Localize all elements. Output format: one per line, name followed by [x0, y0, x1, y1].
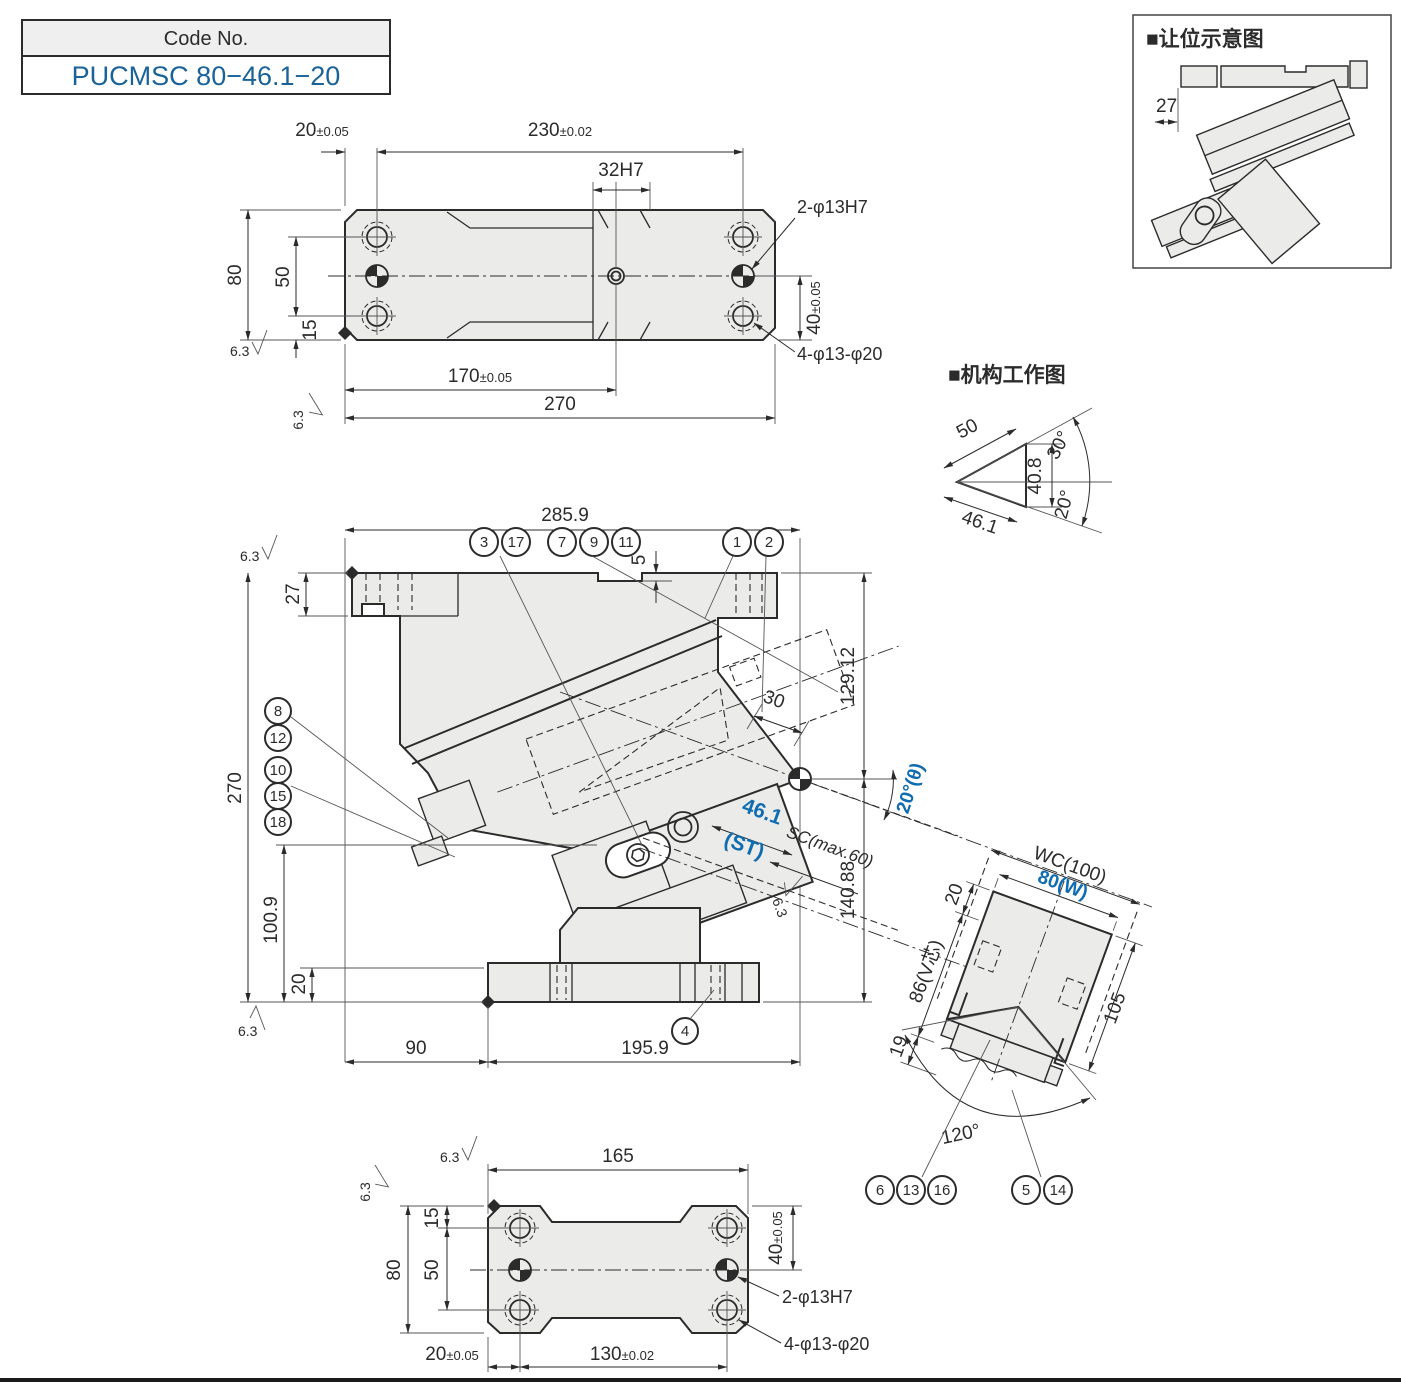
surface-finish-bottom-view: 6.3 6.3 — [357, 1136, 477, 1202]
dim-40-005: 40±0.05 — [804, 281, 825, 335]
balloon-16: 16 — [928, 1176, 956, 1204]
dim-170-005: 170±0.05 — [448, 366, 512, 387]
dim-40-bottom: 40±0.05 — [766, 1211, 787, 1265]
dim-270: 270 — [544, 394, 576, 415]
dim-20-side: 20 — [941, 881, 968, 908]
svg-text:12: 12 — [270, 730, 287, 747]
svg-text:13: 13 — [903, 1182, 920, 1199]
dim-20-005: 20±0.05 — [295, 120, 349, 141]
balloon-8: 8 — [265, 698, 291, 724]
callout-4-phi13-phi20: 4-φ13-φ20 — [797, 344, 882, 364]
dim-27: 27 — [283, 583, 304, 604]
balloon-4: 4 — [672, 1018, 698, 1044]
svg-text:3: 3 — [480, 534, 488, 551]
svg-text:11: 11 — [618, 534, 634, 551]
mech-dim-50: 50 — [953, 415, 982, 443]
balloon-2: 2 — [755, 528, 783, 556]
mechanism-inset: ■机构工作图 40.8 50 46.1 30° 20° — [944, 363, 1112, 539]
balloon-17: 17 — [502, 528, 530, 556]
dim-90: 90 — [405, 1038, 426, 1059]
dim-140-88: 140.88 — [838, 861, 859, 919]
svg-text:8: 8 — [274, 703, 282, 720]
svg-text:6.3: 6.3 — [290, 410, 306, 430]
balloon-12: 12 — [265, 725, 291, 751]
dim-50-bottom: 50 — [422, 1259, 443, 1280]
svg-text:6: 6 — [876, 1182, 884, 1199]
dim-285-9: 285.9 — [541, 505, 589, 526]
dim-230-002: 230±0.02 — [528, 120, 592, 141]
svg-text:6.3: 6.3 — [238, 1023, 258, 1039]
mechanism-title: ■机构工作图 — [948, 363, 1066, 387]
balloon-13: 13 — [897, 1176, 925, 1204]
angle-120: 120° — [939, 1120, 982, 1149]
mech-dim-40-8: 40.8 — [1025, 458, 1046, 495]
balloon-5: 5 — [1012, 1176, 1040, 1204]
balloon-10: 10 — [265, 757, 291, 783]
svg-text:6.3: 6.3 — [357, 1182, 373, 1202]
svg-text:6.3: 6.3 — [440, 1149, 460, 1165]
dim-130-bottom: 130±0.02 — [590, 1344, 654, 1365]
dim-20-bottom: 20±0.05 — [425, 1344, 479, 1365]
base-plate — [488, 963, 759, 1002]
callout-2-phi13h7: 2-φ13H7 — [797, 197, 868, 217]
balloon-9: 9 — [580, 528, 608, 556]
dim-80: 80 — [225, 264, 246, 285]
dim-32h7: 32H7 — [598, 160, 643, 181]
surface-finish-top-view: 6.3 6.3 — [230, 330, 328, 430]
svg-text:2: 2 — [765, 534, 773, 551]
balloon-11: 11 — [612, 528, 640, 556]
code-number-box: Code No. PUCMSC 80−46.1−20 — [22, 20, 390, 94]
balloon-3: 3 — [470, 528, 498, 556]
balloon-15: 15 — [265, 783, 291, 809]
balloon-1: 1 — [723, 528, 751, 556]
svg-text:5: 5 — [1022, 1182, 1030, 1199]
wedge-triangle — [957, 444, 1026, 507]
dim-100-9: 100.9 — [261, 896, 282, 944]
mech-dim-46-1: 46.1 — [959, 507, 1001, 539]
clearance-dim-27: 27 — [1156, 96, 1177, 117]
balloon-7: 7 — [548, 528, 576, 556]
mech-angle-30: 30° — [1043, 428, 1075, 463]
dim-50: 50 — [273, 266, 294, 287]
clearance-inset: ■让位示意图 27 — [1133, 15, 1391, 268]
pedestal — [560, 908, 700, 963]
code-label: Code No. — [164, 28, 249, 50]
dim-5: 5 — [629, 555, 650, 566]
svg-text:10: 10 — [270, 762, 287, 779]
svg-text:18: 18 — [270, 814, 287, 831]
callout-4-phi13-phi20-bottom: 4-φ13-φ20 — [784, 1334, 869, 1354]
angle-20-theta: 20°(θ) — [893, 760, 929, 816]
dim-15-bottom: 15 — [422, 1207, 443, 1228]
dim-80-bottom: 80 — [384, 1259, 405, 1280]
mech-angle-20: 20° — [1051, 488, 1079, 521]
dim-30: 30 — [760, 686, 787, 713]
svg-text:4: 4 — [681, 1023, 689, 1040]
svg-text:14: 14 — [1050, 1182, 1067, 1199]
dim-270-front: 270 — [225, 772, 246, 804]
dim-86-v: 86(V芯) — [904, 937, 947, 1006]
dim-20-front: 20 — [289, 973, 310, 994]
top-view: 20±0.05 230±0.02 32H7 2-φ13H7 4-φ13-φ20 … — [225, 120, 882, 430]
balloon-14: 14 — [1044, 1176, 1072, 1204]
dim-105: 105 — [1100, 990, 1131, 1027]
technical-drawing-page: Code No. PUCMSC 80−46.1−20 20±0.05 230±0… — [0, 0, 1401, 1389]
dim-165: 165 — [602, 1146, 634, 1167]
clearance-title: ■让位示意图 — [1146, 27, 1264, 51]
svg-text:7: 7 — [558, 534, 566, 551]
bottom-view: 165 6.3 6.3 15 50 80 40±0.05 2-φ13H7 4-φ… — [357, 1136, 869, 1372]
svg-text:1: 1 — [733, 534, 741, 551]
balloon-6: 6 — [866, 1176, 894, 1204]
dim-129-12: 129.12 — [838, 647, 859, 705]
svg-text:6.3: 6.3 — [240, 548, 260, 564]
svg-text:6.3: 6.3 — [230, 343, 250, 359]
dim-15: 15 — [300, 319, 321, 340]
svg-text:9: 9 — [590, 534, 598, 551]
vertex-centroid — [789, 768, 811, 790]
dim-195-9: 195.9 — [621, 1038, 669, 1059]
svg-text:6.3: 6.3 — [769, 896, 791, 920]
code-value: PUCMSC 80−46.1−20 — [72, 61, 341, 91]
svg-text:15: 15 — [270, 788, 287, 805]
svg-text:16: 16 — [934, 1182, 951, 1199]
page-divider — [0, 1378, 1401, 1382]
side-view: WC(100) 80(W) 105 20 86(V芯) 19 120° 6 13… — [866, 818, 1169, 1204]
drawing-canvas: Code No. PUCMSC 80−46.1−20 20±0.05 230±0… — [0, 0, 1401, 1389]
svg-text:17: 17 — [508, 534, 525, 551]
balloon-18: 18 — [265, 809, 291, 835]
callout-2-phi13h7-bottom: 2-φ13H7 — [782, 1287, 853, 1307]
dim-19: 19 — [886, 1033, 913, 1060]
